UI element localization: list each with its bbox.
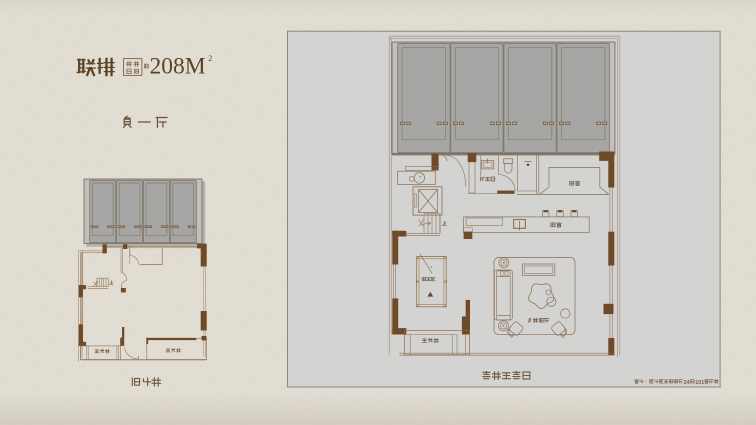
svg-text:24: 24 <box>684 380 690 386</box>
svg-text:208M: 208M <box>150 54 206 80</box>
svg-text:101: 101 <box>695 380 704 386</box>
svg-text:2: 2 <box>208 54 212 63</box>
